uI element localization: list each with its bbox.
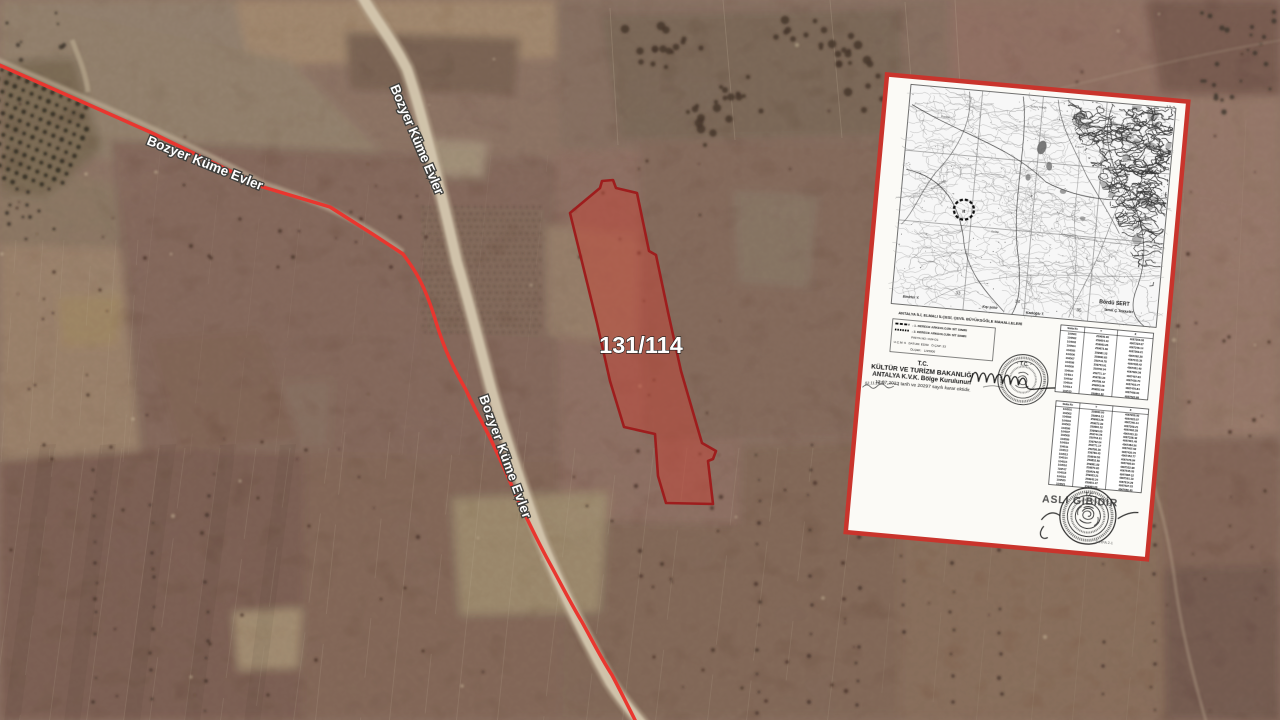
- svg-text:T.C.: T.C.: [1085, 492, 1095, 499]
- svg-text:02.11.2023: 02.11.2023: [864, 380, 885, 385]
- svg-text:ıt: ıt: [962, 210, 966, 215]
- svg-text:Y: Y: [1095, 405, 1097, 409]
- svg-text:X: X: [1129, 408, 1131, 412]
- svg-text:131/114: 131/114: [599, 332, 683, 358]
- svg-text:X: X: [1134, 332, 1136, 336]
- svg-text:35: 35: [1076, 307, 1082, 312]
- svg-text:34: 34: [1014, 299, 1020, 304]
- svg-text:33: 33: [955, 290, 961, 295]
- svg-text:Y: Y: [1100, 329, 1102, 333]
